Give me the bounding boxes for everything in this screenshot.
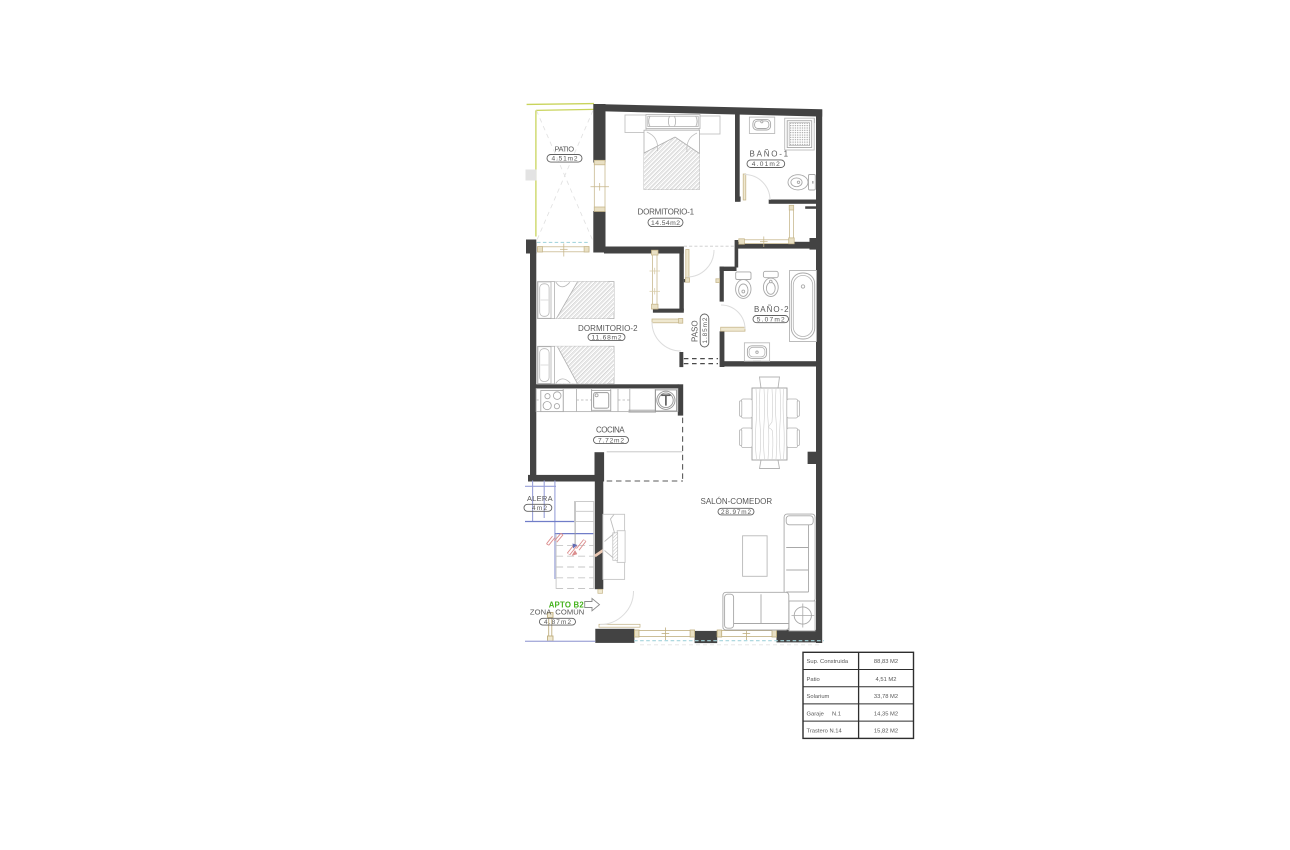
svg-text:4.87m2: 4.87m2 (544, 619, 571, 626)
svg-text:14,35 M2: 14,35 M2 (874, 711, 898, 717)
svg-text:1.85m2: 1.85m2 (702, 317, 709, 343)
svg-text:5.07m2: 5.07m2 (757, 317, 785, 324)
svg-text:SALÓN-COMEDOR: SALÓN-COMEDOR (701, 497, 773, 506)
svg-text:4.01m2: 4.01m2 (752, 161, 780, 168)
svg-text:PATIO: PATIO (555, 145, 575, 154)
svg-text:Sup. Construida: Sup. Construida (807, 659, 849, 665)
svg-text:15,82 M2: 15,82 M2 (874, 729, 898, 735)
svg-text:DORMITORIO-2: DORMITORIO-2 (578, 324, 638, 333)
svg-text:Trastero N.14: Trastero N.14 (807, 729, 843, 735)
svg-text:7.72m2: 7.72m2 (598, 438, 624, 445)
svg-text:4.51m2: 4.51m2 (552, 156, 578, 163)
svg-text:ALERA: ALERA (527, 494, 553, 503)
svg-text:33,78 M2: 33,78 M2 (874, 694, 898, 700)
svg-text:BAÑO-2: BAÑO-2 (754, 305, 789, 314)
svg-text:DORMITORIO-1: DORMITORIO-1 (638, 208, 695, 217)
svg-text:4,51 M2: 4,51 M2 (876, 677, 897, 683)
svg-text:Garaje: Garaje (807, 711, 824, 717)
svg-text:14.54m2: 14.54m2 (651, 220, 680, 227)
svg-text:11.68m2: 11.68m2 (592, 335, 622, 342)
svg-text:COCINA: COCINA (596, 425, 625, 434)
svg-text:N.1: N.1 (832, 711, 841, 717)
svg-text:88,83 M2: 88,83 M2 (874, 659, 898, 665)
svg-text:4m2: 4m2 (532, 505, 547, 512)
svg-text:Patio: Patio (807, 677, 820, 683)
svg-text:28.97m2: 28.97m2 (721, 509, 751, 516)
svg-text:Solarium: Solarium (807, 694, 830, 700)
svg-text:PASO: PASO (690, 320, 699, 342)
svg-text:ZONA COMÚN: ZONA COMÚN (530, 608, 585, 617)
